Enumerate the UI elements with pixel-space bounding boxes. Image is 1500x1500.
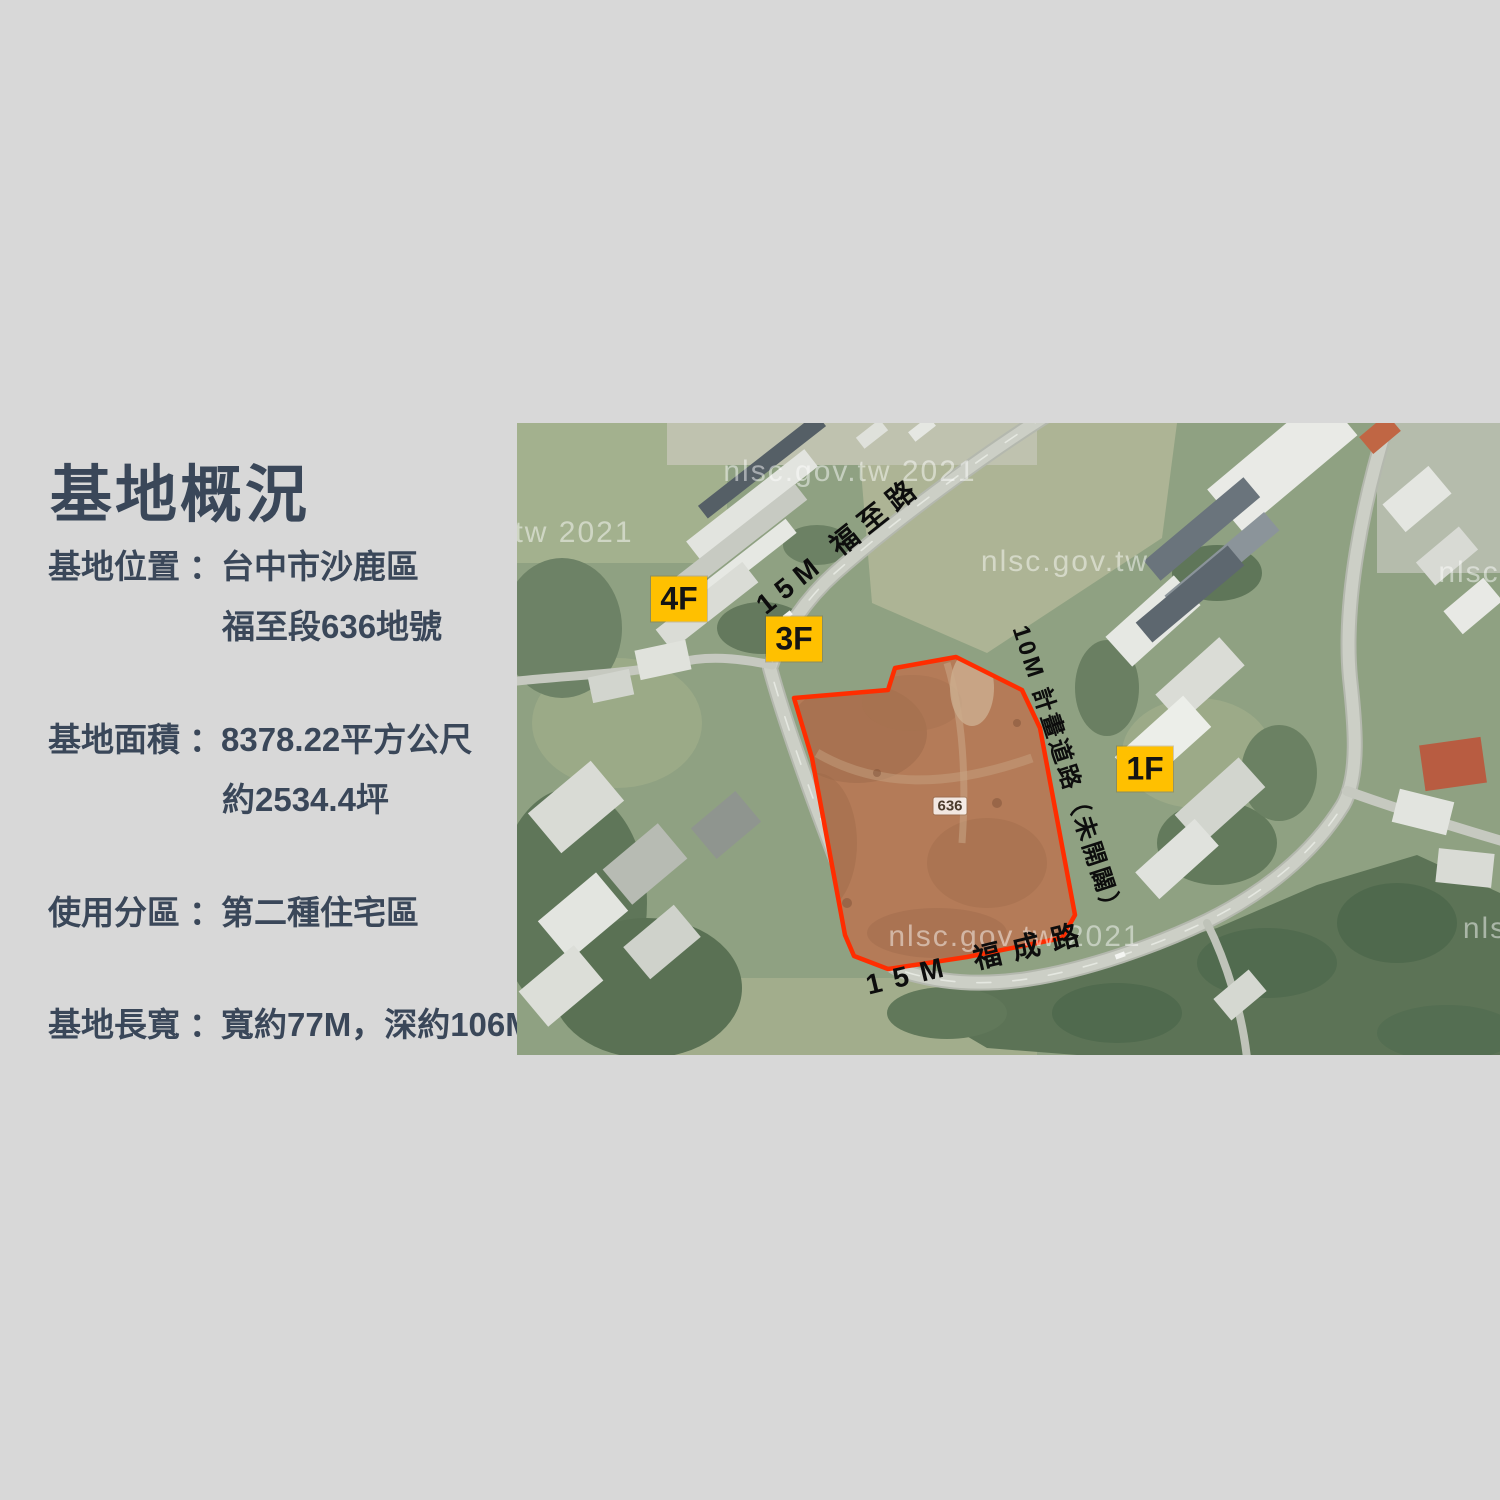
watermark: nlsc (1438, 556, 1499, 590)
info-colon: ： (189, 998, 222, 1046)
info-label-zoning: 使用分區 (48, 886, 180, 934)
info-value-location-1: 台中市沙鹿區 (221, 540, 419, 588)
floor-badge-4f: 4F (651, 577, 707, 622)
info-value-dimensions: 寬約77M，深約106M (221, 998, 533, 1046)
floor-badge-1f: 1F (1117, 747, 1173, 792)
info-value-location-2: 福至段636地號 (222, 600, 442, 648)
info-label-dimensions: 基地長寬 (48, 998, 180, 1046)
info-colon: ： (189, 540, 222, 588)
watermark: nlsc.gov.tw (981, 545, 1149, 579)
info-label-area: 基地面積 (48, 713, 180, 761)
watermark: tw 2021 (517, 516, 634, 550)
info-colon: ： (189, 886, 222, 934)
site-aerial-map: nlsc.gov.tw 2021 tw 2021 nlsc.gov.tw nls… (517, 423, 1500, 1055)
info-label-location: 基地位置 (48, 540, 180, 588)
floor-badge-3f: 3F (766, 617, 822, 662)
info-value-zoning: 第二種住宅區 (221, 886, 419, 934)
info-value-area-2: 約2534.4坪 (222, 773, 389, 821)
page-title: 基地概況 (50, 444, 310, 534)
watermark: nlsc.gov.tw 2021 (723, 455, 976, 489)
info-value-area-1: 8378.22平方公尺 (221, 713, 472, 761)
parcel-number-tag: 636 (933, 798, 966, 815)
slide-canvas: { "panel": { "title": "基地概況", "rows": [ … (0, 0, 1500, 1500)
info-colon: ： (189, 713, 222, 761)
watermark: nls (1463, 912, 1500, 946)
